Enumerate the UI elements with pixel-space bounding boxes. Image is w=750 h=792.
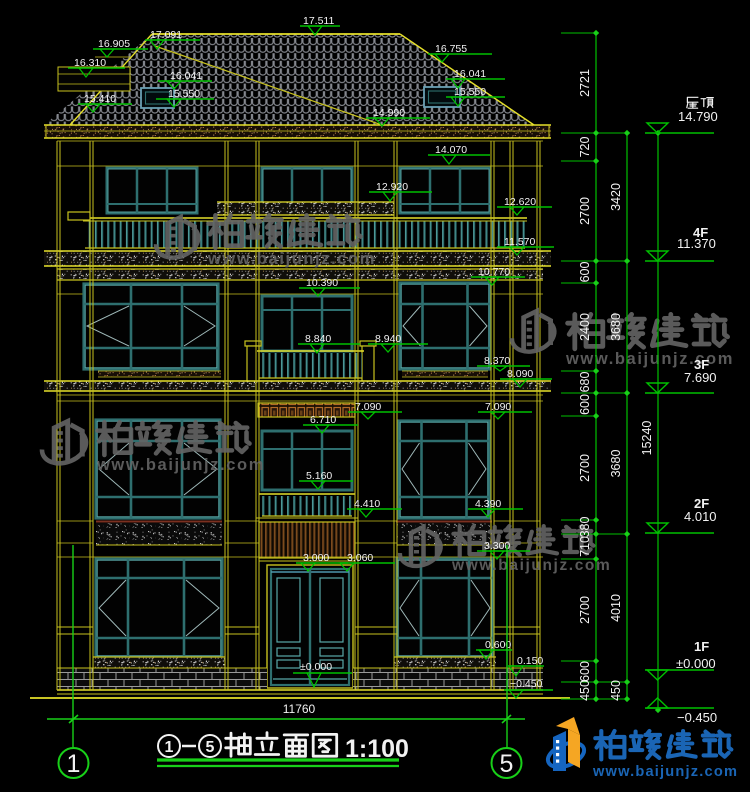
svg-text:3.000: 3.000 — [303, 552, 329, 564]
svg-text:±0.000: ±0.000 — [300, 661, 332, 673]
svg-text:600: 600 — [578, 262, 592, 283]
svg-text:2700: 2700 — [578, 197, 592, 225]
svg-text:14.990: 14.990 — [373, 107, 405, 119]
svg-text:15240: 15240 — [640, 421, 654, 456]
svg-text:8.370: 8.370 — [484, 355, 510, 367]
svg-text:0.150: 0.150 — [517, 655, 543, 667]
svg-text:17.091: 17.091 — [150, 29, 182, 41]
svg-text:www.baijunjz.com: www.baijunjz.com — [96, 456, 265, 474]
svg-text:4.410: 4.410 — [354, 498, 380, 510]
svg-text:2700: 2700 — [578, 596, 592, 624]
svg-text:8.090: 8.090 — [507, 368, 533, 380]
svg-text:15.550: 15.550 — [168, 88, 200, 100]
svg-text:600: 600 — [578, 394, 592, 415]
svg-text:2721: 2721 — [578, 69, 592, 97]
svg-text:6.710: 6.710 — [310, 414, 336, 426]
svg-text:10.770: 10.770 — [478, 266, 510, 278]
svg-text:−0.450: −0.450 — [510, 678, 543, 690]
svg-text:15.550: 15.550 — [454, 86, 486, 98]
svg-text:8.840: 8.840 — [305, 333, 331, 345]
svg-text:16.905: 16.905 — [98, 38, 130, 50]
svg-text:1: 1 — [165, 739, 174, 756]
svg-text:450: 450 — [578, 680, 592, 701]
svg-text:600: 600 — [578, 661, 592, 682]
svg-text:12.920: 12.920 — [376, 181, 408, 193]
svg-text:16.310: 16.310 — [74, 57, 106, 69]
svg-text:www.baijunjz.com: www.baijunjz.com — [207, 250, 376, 268]
svg-text:5.160: 5.160 — [306, 470, 332, 482]
svg-text:15.410: 15.410 — [84, 93, 116, 105]
svg-text:680: 680 — [578, 372, 592, 393]
svg-text:8.940: 8.940 — [375, 333, 401, 345]
svg-text:14.070: 14.070 — [435, 144, 467, 156]
svg-text:1F: 1F — [694, 639, 709, 654]
svg-text:720: 720 — [578, 137, 592, 158]
svg-text:5: 5 — [500, 750, 514, 778]
svg-text:4F: 4F — [693, 225, 708, 240]
svg-text:11.570: 11.570 — [504, 236, 535, 248]
svg-text:7.090: 7.090 — [355, 401, 381, 413]
svg-text:710: 710 — [578, 536, 592, 557]
svg-text:3F: 3F — [694, 357, 709, 372]
svg-text:4010: 4010 — [609, 594, 623, 622]
svg-text:16.041: 16.041 — [170, 70, 202, 82]
svg-text:2400: 2400 — [578, 313, 592, 341]
svg-text:−0.450: −0.450 — [677, 710, 717, 725]
svg-text:2F: 2F — [694, 496, 709, 511]
svg-text:4.390: 4.390 — [475, 498, 501, 510]
svg-text:16.041: 16.041 — [454, 68, 486, 80]
svg-text:10.390: 10.390 — [306, 277, 338, 289]
svg-text:7.690: 7.690 — [684, 370, 717, 385]
svg-text:7.090: 7.090 — [485, 401, 511, 413]
svg-text:5: 5 — [206, 739, 215, 756]
svg-text:3420: 3420 — [609, 183, 623, 211]
svg-text:www.baijunjz.com: www.baijunjz.com — [592, 764, 738, 780]
svg-text:380: 380 — [578, 517, 592, 538]
svg-text:±0.000: ±0.000 — [676, 656, 716, 671]
svg-text:17.511: 17.511 — [303, 15, 334, 27]
svg-text:450: 450 — [609, 680, 623, 701]
svg-text:4.010: 4.010 — [684, 509, 717, 524]
svg-text:3680: 3680 — [609, 313, 623, 341]
svg-text:14.790: 14.790 — [678, 109, 718, 124]
svg-text:16.755: 16.755 — [435, 43, 467, 55]
svg-text:1: 1 — [67, 750, 81, 778]
svg-text:11760: 11760 — [283, 702, 316, 716]
svg-text:12.620: 12.620 — [504, 196, 536, 208]
svg-text:3.060: 3.060 — [347, 552, 373, 564]
svg-text:2700: 2700 — [578, 454, 592, 482]
svg-text:3680: 3680 — [609, 450, 623, 478]
